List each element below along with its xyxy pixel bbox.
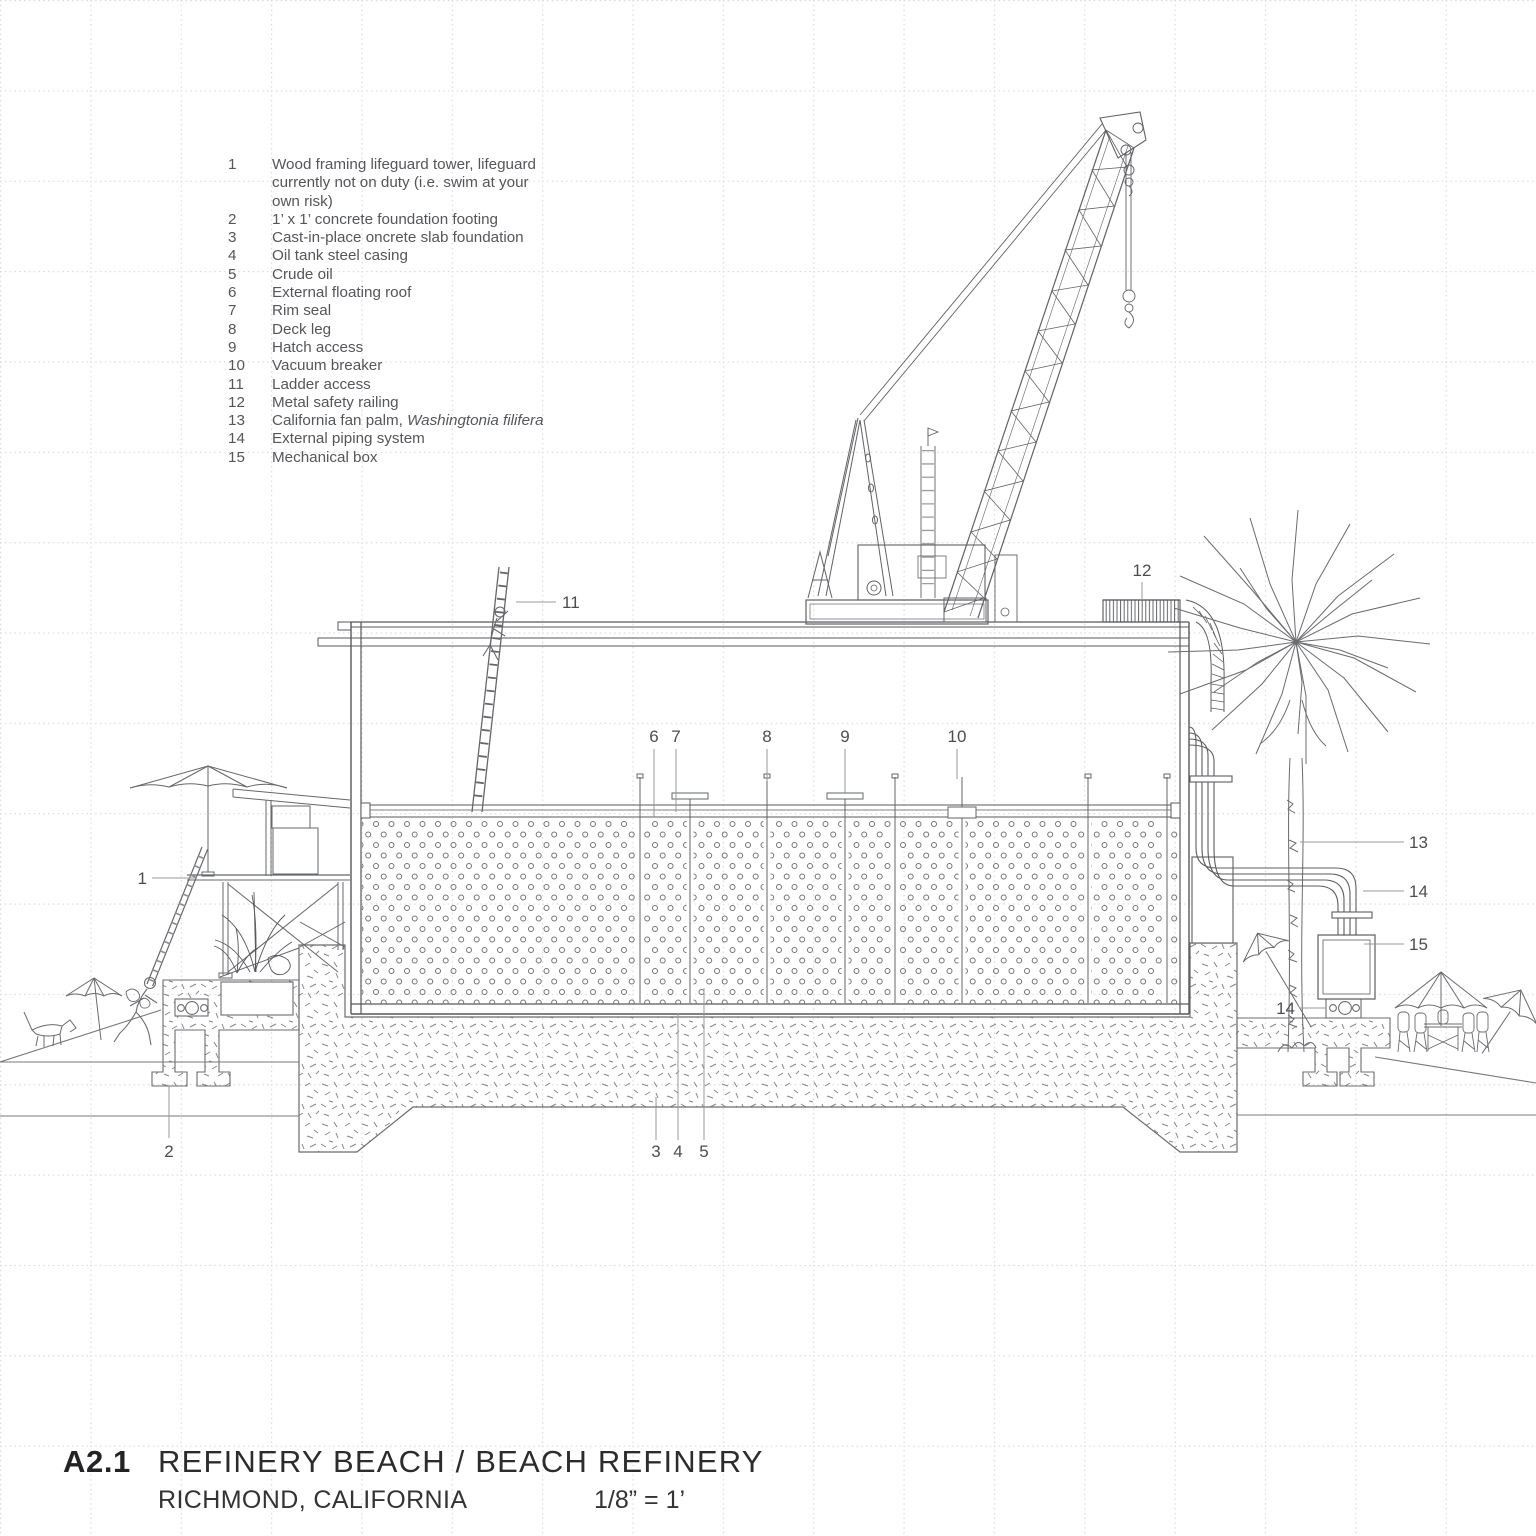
legend-item: 9Hatch access: [228, 339, 558, 357]
legend-item: 5Crude oil: [228, 266, 558, 284]
tower-ramp: [147, 847, 208, 986]
legend-num: 2: [228, 211, 272, 229]
legend-num: 13: [228, 412, 272, 430]
crane-hook: [1123, 152, 1135, 328]
legend-item: 15Mechanical box: [228, 449, 558, 467]
crane-mast: [921, 428, 938, 598]
legend-text: External floating roof: [272, 284, 554, 302]
rim-seal-left: [361, 803, 370, 818]
callout-7: 7: [671, 727, 680, 746]
legend-num: 3: [228, 229, 272, 247]
crane-gantry: [818, 418, 893, 596]
callout-11: 11: [562, 593, 580, 612]
legend-item: 21’ x 1’ concrete foundation footing: [228, 211, 558, 229]
legend-item: 14External piping system: [228, 430, 558, 448]
callout-10: 10: [948, 727, 967, 746]
legend-text: Vacuum breaker: [272, 357, 554, 375]
legend-text: Oil tank steel casing: [272, 247, 554, 265]
callout-2: 2: [164, 1142, 173, 1161]
legend-num: 12: [228, 394, 272, 412]
legend: 1Wood framing lifeguard tower, lifeguard…: [228, 156, 558, 467]
legend-num: 11: [228, 376, 272, 394]
footing-assembly-left: [152, 980, 299, 1086]
curved-stair: [1186, 600, 1224, 712]
runner-figure: [114, 978, 157, 1046]
legend-num: 10: [228, 357, 272, 375]
callout-5: 5: [699, 1142, 708, 1161]
pipe-flange: [1332, 912, 1372, 918]
legend-num: 14: [228, 430, 272, 448]
callout-1: 1: [138, 869, 147, 888]
legend-item: 6External floating roof: [228, 284, 558, 302]
table-and-chairs: [1398, 1010, 1489, 1052]
legend-item: 4Oil tank steel casing: [228, 247, 558, 265]
callout-8: 8: [762, 727, 771, 746]
boom-head: [1100, 112, 1146, 158]
legend-item: 12Metal safety railing: [228, 394, 558, 412]
callout-14-bottom: 14: [1276, 999, 1295, 1018]
legend-num: 8: [228, 321, 272, 339]
legend-item: 3Cast-in-place oncrete slab foundation: [228, 229, 558, 247]
safety-railing: [1103, 600, 1180, 622]
legend-num: 9: [228, 339, 272, 357]
pipe-support: [1192, 857, 1233, 943]
access-ladder: [472, 567, 509, 812]
callout-12: 12: [1133, 561, 1152, 580]
legend-text: Mechanical box: [272, 449, 554, 467]
legend-item: 7Rim seal: [228, 302, 558, 320]
legend-text: Metal safety railing: [272, 394, 554, 412]
legend-num: 5: [228, 266, 272, 284]
legend-text: External piping system: [272, 430, 554, 448]
callout-4: 4: [673, 1142, 682, 1161]
legend-item: 11Ladder access: [228, 376, 558, 394]
legend-text: Cast-in-place oncrete slab foundation: [272, 229, 554, 247]
legend-num: 6: [228, 284, 272, 302]
callout-3: 3: [651, 1142, 660, 1161]
dog-figure: [24, 1012, 76, 1047]
legend-text: Crude oil: [272, 266, 554, 284]
legend-num: 15: [228, 449, 272, 467]
beach-umbrella-left: [66, 978, 122, 1040]
callout-13: 13: [1409, 833, 1428, 852]
beach-left: [24, 978, 157, 1048]
crawler-crane: [806, 112, 1146, 624]
callout-14-right: 14: [1409, 882, 1428, 901]
tower-umbrella: [130, 766, 287, 876]
mechanical-box: [1318, 935, 1375, 999]
tilted-umbrella-right: [1461, 977, 1536, 1070]
legend-num: 1: [228, 156, 272, 211]
rim-seal-right: [1171, 803, 1180, 818]
legend-item: 10Vacuum breaker: [228, 357, 558, 375]
floating-roof: [361, 803, 1180, 818]
legend-item: 13California fan palm, Washingtonia fili…: [228, 412, 558, 430]
legend-text: Rim seal: [272, 302, 554, 320]
legend-text: Ladder access: [272, 376, 554, 394]
callout-9: 9: [840, 727, 849, 746]
legend-text: Wood framing lifeguard tower, lifeguard …: [272, 156, 554, 211]
footing-assembly-right: [1237, 999, 1390, 1086]
species-italic: Washingtonia filifera: [407, 412, 543, 429]
legend-item: 8Deck leg: [228, 321, 558, 339]
legend-text: 1’ x 1’ concrete foundation footing: [272, 211, 554, 229]
drawing-sheet: 1 2 3 4 5 6 7 8 9 10 11 12 13 14 15 14 1…: [0, 0, 1536, 1536]
pipe-flange: [1190, 776, 1232, 782]
external-piping: [1189, 727, 1372, 943]
legend-text: California fan palm, Washingtonia filife…: [272, 412, 554, 430]
legend-text: Hatch access: [272, 339, 554, 357]
legend-num: 4: [228, 247, 272, 265]
legend-text: Deck leg: [272, 321, 554, 339]
legend-num: 7: [228, 302, 272, 320]
legend-item: 1Wood framing lifeguard tower, lifeguard…: [228, 156, 558, 211]
callout-15: 15: [1409, 935, 1428, 954]
callout-6: 6: [649, 727, 658, 746]
